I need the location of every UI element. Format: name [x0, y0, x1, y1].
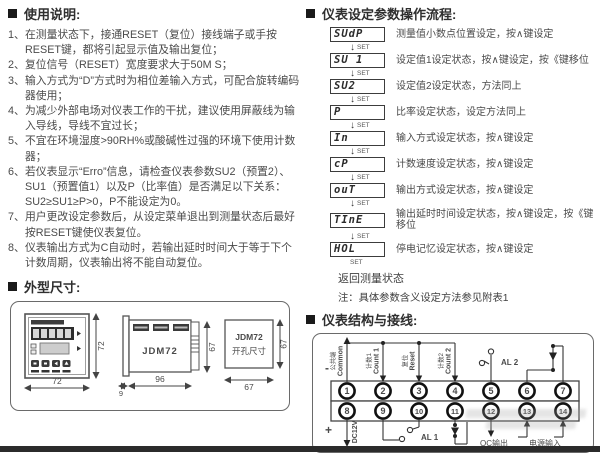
flow-step-desc: 测量值小数点位置设定，按∧键设定 — [396, 29, 596, 40]
flow-step-desc: 计数速度设定状态，按∧键设定 — [396, 159, 596, 170]
power-input: 电源输入 — [518, 420, 566, 448]
terminal-number: 1 — [344, 386, 349, 396]
front-height-dim: 72 — [96, 341, 106, 351]
dc12v-label: DC12V — [352, 420, 359, 443]
count1-label-cn: 计数1 — [364, 352, 373, 369]
minus-sign: - — [325, 361, 329, 375]
right-column: 仪表设定参数操作流程: SUdP测量值小数点位置设定，按∧键设定↓SETSU 1… — [306, 0, 596, 455]
terminal-number: 10 — [415, 407, 423, 416]
dimensions-box: 72 72 JDM72 67 — [10, 301, 290, 411]
terminal-number: 5 — [488, 386, 493, 396]
terminal-number: 8 — [344, 406, 349, 416]
usage-item: 2、复位信号（RESET）宽度要求大于50M S； — [8, 58, 300, 73]
flow-arrow: ↓SET — [350, 94, 596, 105]
terminal-number: 4 — [452, 386, 457, 396]
usage-item: 1、在测量状态下，接通RESET（复位）接线端子或手按RESET键，都将引起显示… — [8, 28, 300, 58]
segment-display: SU 1 — [330, 53, 385, 68]
indicator-lamp — [31, 350, 36, 354]
set-key-label: SET — [357, 148, 370, 155]
set-key-label: SET — [357, 96, 370, 103]
side-view-drawing: JDM72 67 96 9 — [117, 310, 221, 402]
usage-title: 使用说明: — [24, 4, 80, 23]
dimensions-section-header: 外型尺寸: — [8, 277, 300, 296]
usage-item-text: 用户更改设定参数后，从设定菜单退出到测量状态后最好按RESET键使仪表复位。 — [25, 210, 300, 240]
set-key-label: SET — [357, 122, 370, 129]
segment-display: cP — [330, 157, 385, 172]
usage-item: 5、不宜在环境湿度>90RH%或酸碱性过强的环境下使用计数器； — [8, 134, 300, 164]
flow-step-desc: 输入方式设定状态，按∧键设定 — [396, 133, 596, 144]
reset-label-en: Reset — [410, 351, 417, 371]
flow-section-header: 仪表设定参数操作流程: — [306, 4, 596, 23]
section-marker-icon — [306, 315, 315, 324]
flow-arrow: ↓SET — [350, 68, 596, 79]
section-marker-icon — [306, 9, 315, 18]
vent-slots — [133, 324, 189, 331]
flow-arrow: ↓SET — [350, 198, 596, 209]
usage-item-number: 5、 — [8, 134, 25, 164]
terminal-number: 2 — [380, 386, 385, 396]
segment-display: HOL — [330, 242, 385, 257]
flow-step: SU2设定值2设定状态，方法同上 — [330, 79, 596, 94]
usage-item-number: 3、 — [8, 74, 25, 104]
flow-return-label: 返回测量状态 — [338, 270, 596, 286]
segment-display: TInE — [330, 213, 385, 228]
set-key-label: SET — [357, 200, 370, 207]
segment-display: P — [330, 105, 385, 120]
down-arrow-icon: ↓ — [350, 121, 355, 131]
flow-note: 注：具体参数含义设定方法参见附表1 — [338, 289, 596, 304]
flow-arrow: ↓SET — [350, 120, 596, 131]
flow-arrow: ↓SET — [350, 42, 596, 53]
cutout-label: 开孔尺寸 — [232, 346, 267, 356]
usage-item: 6、若仪表显示“Erro”信息，请检查仪表参数SU2（预置2）、SU1（预置值1… — [8, 165, 300, 211]
set-key-label: SET — [357, 233, 370, 240]
common-label-en: Common — [338, 346, 345, 376]
flow-step-desc: 设定值1设定状态，按∧键设定，按《键移位 — [396, 55, 596, 66]
usage-section-header: 使用说明: — [8, 4, 300, 23]
down-arrow-icon: ↓ — [350, 95, 355, 105]
flow-step: P比率设定状态，设定方法同上 — [330, 105, 596, 120]
usage-item-text: 为减少外部电场对仪表工作的干扰，建议使用屏蔽线为输入导线，导线不宜过长； — [25, 104, 300, 134]
usage-item-number: 7、 — [8, 210, 25, 240]
usage-item-text: 在测量状态下，接通RESET（复位）接线端子或手按RESET键，都将引起显示值及… — [25, 28, 300, 58]
wiring-section-header: 仪表结构与接线: — [306, 310, 596, 329]
down-arrow-icon: ↓ — [350, 232, 355, 242]
terminal-number: 11 — [451, 407, 459, 416]
flow-arrow: ↓SET — [350, 172, 596, 183]
flow-arrow: ↓SET — [350, 231, 596, 242]
flow-step: cP计数速度设定状态，按∧键设定 — [330, 157, 596, 172]
flow-step-desc: 设定值2设定状态，方法同上 — [396, 81, 596, 92]
flow-title: 仪表设定参数操作流程: — [322, 4, 456, 23]
al2-label: AL 2 — [501, 358, 519, 367]
flow-step-desc: 比率设定状态，设定方法同上 — [396, 107, 596, 118]
terminal-number: 9 — [380, 406, 385, 416]
flow-step: HOL停电记忆设定状态，按∧键设定 — [330, 242, 596, 257]
segment-display: SU2 — [330, 79, 385, 94]
usage-item: 7、用户更改设定参数后，从设定菜单退出到测量状态后最好按RESET键使仪表复位。 — [8, 210, 300, 240]
terminal-number: 3 — [416, 386, 421, 396]
terminal-number: 14 — [559, 407, 568, 416]
terminal-number: 6 — [524, 386, 529, 396]
wiring-title: 仪表结构与接线: — [322, 310, 417, 329]
down-arrow-icon: ↓ — [350, 173, 355, 183]
usage-item: 4、为减少外部电场对仪表工作的干扰，建议使用屏蔽线为输入导线，导线不宜过长； — [8, 104, 300, 134]
terminal-number: 12 — [487, 407, 495, 416]
usage-list: 1、在测量状态下，接通RESET（复位）接线端子或手按RESET键，都将引起显示… — [8, 28, 300, 271]
usage-item-text: 复位信号（RESET）宽度要求大于50M S； — [25, 58, 300, 73]
flow-step-desc: 输出延时时间设定状态，按∧键设定，按《键移位 — [396, 209, 596, 231]
count2-label-en: Count 2 — [446, 348, 453, 374]
al1-label: AL 1 — [421, 433, 439, 442]
dc12v-wire: + DC12V — [325, 419, 359, 447]
left-column: 使用说明: 1、在测量状态下，接通RESET（复位）接线端子或手按RESET键，… — [8, 0, 300, 411]
wiring-box: 1234567 891011121314 - 公共端 Common — [312, 333, 594, 453]
segment-display: ouT — [330, 183, 385, 198]
plus-sign: + — [325, 423, 332, 437]
usage-item-number: 2、 — [8, 58, 25, 73]
al2-relay: AL 2 — [479, 344, 563, 383]
brand-bar — [31, 320, 64, 325]
set-key-label: SET — [357, 70, 370, 77]
cutout-height-dim: 67 — [279, 339, 288, 349]
set-key-label: SET — [357, 174, 370, 181]
usage-item-text: 仪表输出方式为C自动时，若输出延时时间大于等于下个计数周期，仪表输出将不能自动复… — [25, 241, 300, 271]
usage-item-number: 1、 — [8, 28, 25, 58]
usage-item-number: 6、 — [8, 165, 25, 211]
flow-arrow: ↓SET — [350, 146, 596, 157]
usage-item: 3、输入方式为“D”方式时为相位差输入方式，可配合旋转编码器使用； — [8, 74, 300, 104]
down-arrow-icon: ↓ — [350, 69, 355, 79]
dimensions-title: 外型尺寸: — [24, 277, 80, 296]
oc-output: OC输出 — [480, 419, 508, 448]
set-key-label: SET — [357, 44, 370, 51]
front-width-dim: 72 — [52, 376, 62, 386]
page-bottom-rule — [0, 446, 600, 452]
flow-step: TInE输出延时时间设定状态，按∧键设定，按《键移位 — [330, 209, 596, 231]
terminal-number: 13 — [523, 407, 531, 416]
flow-step-desc: 输出方式设定状态，按∧键设定 — [396, 185, 596, 196]
front-view-drawing: 72 72 — [19, 310, 119, 402]
usage-item-number: 4、 — [8, 104, 25, 134]
segment-display: SUdP — [330, 27, 385, 42]
cutout-model-label: JDM72 — [235, 332, 263, 342]
manual-page: 使用说明: 1、在测量状态下，接通RESET（复位）接线端子或手按RESET键，… — [0, 0, 600, 455]
usage-item-text: 若仪表显示“Erro”信息，请检查仪表参数SU2（预置2）、SU1（预置值1）以… — [25, 165, 300, 211]
usage-item-text: 不宜在环境湿度>90RH%或酸碱性过强的环境下使用计数器； — [25, 134, 300, 164]
wiring-diagram: 1234567 891011121314 - 公共端 Common — [313, 334, 591, 450]
secondary-display — [40, 343, 69, 354]
down-arrow-icon: ↓ — [350, 43, 355, 53]
usage-item-text: 输入方式为“D”方式时为相位差输入方式，可配合旋转编码器使用； — [25, 74, 300, 104]
flow-step: ouT输出方式设定状态，按∧键设定 — [330, 183, 596, 198]
side-height-dim: 67 — [207, 342, 217, 352]
cutout-drawing: JDM72 开孔尺寸 67 67 — [223, 310, 287, 402]
al1-relay: AL 1 — [383, 419, 467, 444]
down-arrow-icon: ↓ — [350, 147, 355, 157]
flow-step: In输入方式设定状态，按∧键设定 — [330, 131, 596, 146]
count1-label-en: Count 1 — [374, 348, 381, 374]
flow-step: SUdP测量值小数点位置设定，按∧键设定 — [330, 27, 596, 42]
usage-item: 8、仪表输出方式为C自动时，若输出延时时间大于等于下个计数周期，仪表输出将不能自… — [8, 241, 300, 271]
usage-item-number: 8、 — [8, 241, 25, 271]
flow-step: SU 1设定值1设定状态，按∧键设定，按《键移位 — [330, 53, 596, 68]
side-model-label: JDM72 — [142, 346, 178, 357]
common-label-cn: 公共端 — [328, 351, 337, 371]
terminal-number: 7 — [560, 386, 565, 396]
section-marker-icon — [8, 9, 17, 18]
section-marker-icon — [8, 282, 17, 291]
count2-label-cn: 计数2 — [436, 352, 445, 369]
reset-label-cn: 复位 — [400, 354, 409, 367]
flow-chart: SUdP测量值小数点位置设定，按∧键设定↓SETSU 1设定值1设定状态，按∧键… — [330, 27, 596, 268]
flow-step-desc: 停电记忆设定状态，按∧键设定 — [396, 244, 596, 255]
down-arrow-icon: ↓ — [350, 199, 355, 209]
side-panel-dim: 9 — [119, 389, 123, 398]
flow-arrow: SET — [350, 257, 596, 268]
side-length-dim: 96 — [155, 374, 165, 384]
set-key-label: SET — [350, 259, 363, 266]
cutout-width-dim: 67 — [244, 382, 254, 392]
segment-display: In — [330, 131, 385, 146]
indicator-lamp — [31, 344, 36, 348]
